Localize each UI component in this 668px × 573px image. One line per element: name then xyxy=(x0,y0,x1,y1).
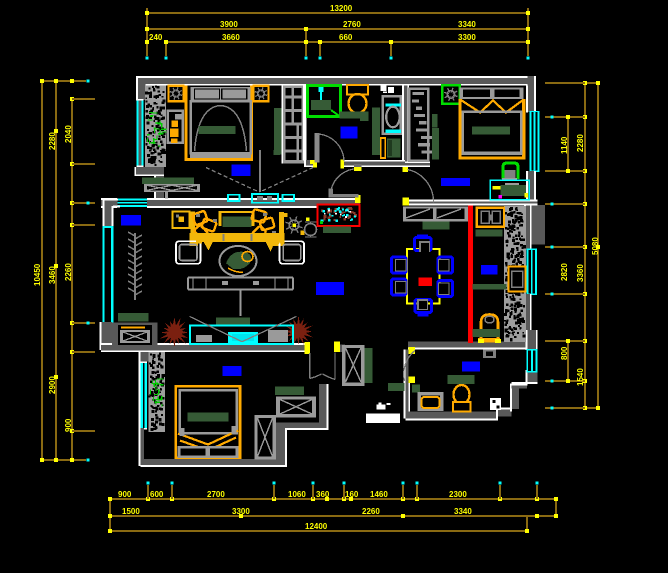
svg-text:3460: 3460 xyxy=(48,266,57,284)
svg-text:660: 660 xyxy=(339,33,353,42)
svg-text:3340: 3340 xyxy=(458,20,476,29)
svg-text:360: 360 xyxy=(316,490,330,499)
svg-text:2760: 2760 xyxy=(343,20,361,29)
svg-text:2040: 2040 xyxy=(64,125,73,143)
svg-text:2280: 2280 xyxy=(48,132,57,150)
svg-text:12400: 12400 xyxy=(305,522,328,531)
svg-text:5080: 5080 xyxy=(591,237,600,255)
svg-text:800: 800 xyxy=(560,346,569,360)
svg-text:1500: 1500 xyxy=(122,507,140,516)
svg-text:3360: 3360 xyxy=(576,264,585,282)
svg-text:900: 900 xyxy=(118,490,132,499)
svg-text:3340: 3340 xyxy=(454,507,472,516)
svg-text:600: 600 xyxy=(150,490,164,499)
svg-text:2900: 2900 xyxy=(48,376,57,394)
svg-text:3300: 3300 xyxy=(232,507,250,516)
svg-text:1540: 1540 xyxy=(576,368,585,386)
svg-text:1140: 1140 xyxy=(560,136,569,154)
svg-text:3900: 3900 xyxy=(220,20,238,29)
svg-text:3300: 3300 xyxy=(458,33,476,42)
svg-text:240: 240 xyxy=(149,33,163,42)
svg-text:2260: 2260 xyxy=(362,507,380,516)
svg-text:10450: 10450 xyxy=(33,263,42,286)
svg-text:3660: 3660 xyxy=(222,33,240,42)
svg-text:2700: 2700 xyxy=(207,490,225,499)
svg-text:1460: 1460 xyxy=(370,490,388,499)
svg-text:900: 900 xyxy=(64,418,73,432)
svg-text:2260: 2260 xyxy=(64,263,73,281)
svg-text:2280: 2280 xyxy=(576,134,585,152)
svg-text:13200: 13200 xyxy=(330,4,353,13)
svg-text:1060: 1060 xyxy=(288,490,306,499)
svg-text:2300: 2300 xyxy=(449,490,467,499)
svg-text:160: 160 xyxy=(345,490,359,499)
svg-text:2820: 2820 xyxy=(560,263,569,281)
